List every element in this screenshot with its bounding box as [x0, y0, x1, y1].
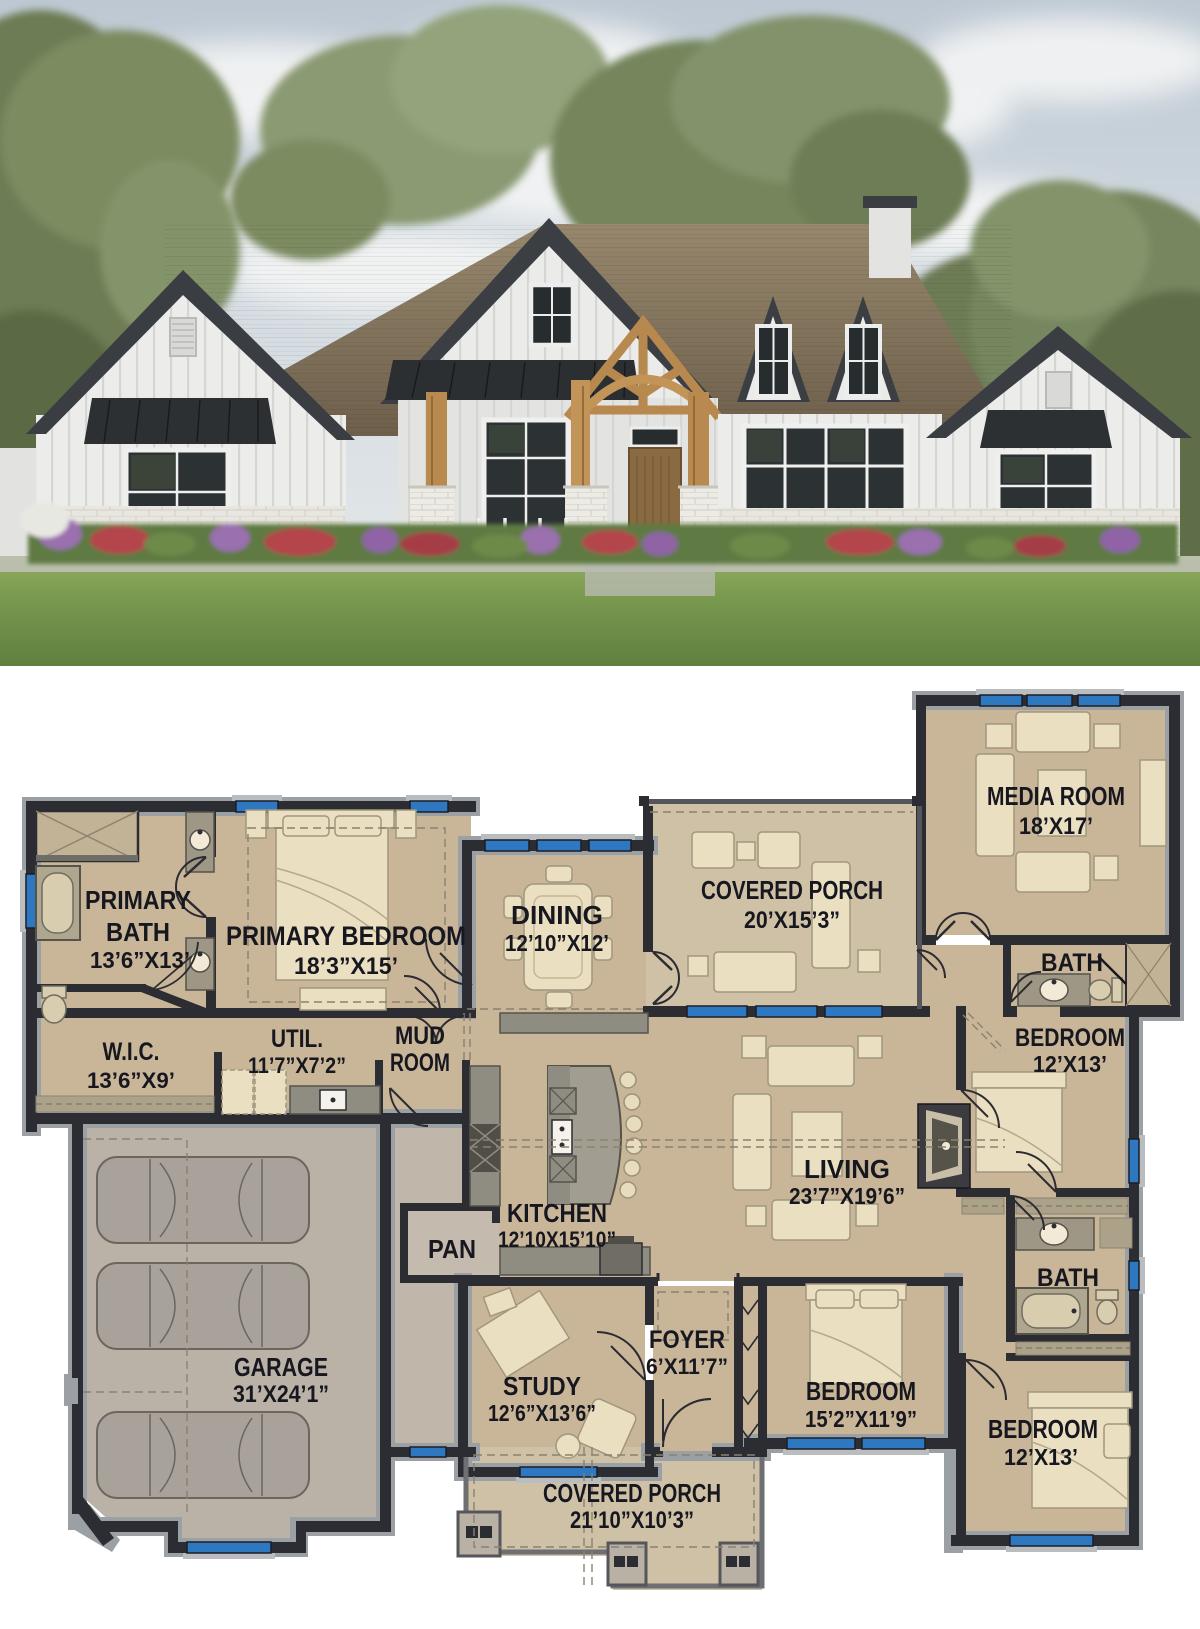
svg-text:BATH: BATH	[1041, 949, 1103, 977]
svg-text:21’10”X10’3”: 21’10”X10’3”	[570, 1507, 694, 1534]
svg-text:18’3”X15’: 18’3”X15’	[294, 953, 398, 980]
svg-text:11’7”X7’2”: 11’7”X7’2”	[248, 1053, 346, 1078]
svg-text:PAN: PAN	[428, 1234, 476, 1264]
svg-text:MEDIA ROOM: MEDIA ROOM	[987, 781, 1125, 811]
svg-text:FOYER: FOYER	[649, 1326, 725, 1354]
svg-text:PRIMARY: PRIMARY	[85, 885, 191, 915]
svg-text:12’6”X13’6”: 12’6”X13’6”	[488, 1400, 596, 1426]
svg-text:BATH: BATH	[106, 917, 170, 947]
svg-text:ROOM: ROOM	[390, 1049, 450, 1077]
svg-text:COVERED PORCH: COVERED PORCH	[701, 875, 883, 905]
svg-text:W.I.C.: W.I.C.	[103, 1038, 160, 1066]
svg-text:12’10X15’10”: 12’10X15’10”	[498, 1227, 616, 1252]
svg-text:BATH: BATH	[1037, 1264, 1099, 1292]
svg-text:13’6”X9’: 13’6”X9’	[87, 1068, 175, 1093]
svg-text:12’X13’: 12’X13’	[1004, 1444, 1078, 1470]
svg-text:DINING: DINING	[511, 900, 603, 930]
svg-text:GARAGE: GARAGE	[234, 1352, 328, 1382]
svg-text:18’X17’: 18’X17’	[1019, 813, 1093, 840]
svg-text:12’10”X12’: 12’10”X12’	[505, 930, 609, 956]
svg-text:12’X13’: 12’X13’	[1033, 1051, 1107, 1077]
svg-text:31’X24’1”: 31’X24’1”	[233, 1381, 329, 1408]
svg-text:13’6”X13’: 13’6”X13’	[90, 947, 190, 973]
svg-text:KITCHEN: KITCHEN	[507, 1198, 607, 1228]
svg-text:COVERED PORCH: COVERED PORCH	[543, 1478, 721, 1508]
svg-text:BEDROOM: BEDROOM	[1015, 1024, 1125, 1052]
svg-text:BEDROOM: BEDROOM	[988, 1414, 1098, 1444]
svg-text:20’X15’3”: 20’X15’3”	[744, 907, 840, 934]
svg-text:BEDROOM: BEDROOM	[806, 1376, 916, 1406]
svg-text:LIVING: LIVING	[804, 1154, 890, 1184]
svg-text:STUDY: STUDY	[503, 1371, 581, 1401]
svg-text:PRIMARY BEDROOM: PRIMARY BEDROOM	[226, 921, 466, 951]
svg-text:23’7”X19’6”: 23’7”X19’6”	[789, 1183, 905, 1209]
svg-text:UTIL.: UTIL.	[271, 1025, 323, 1053]
svg-text:MUD: MUD	[395, 1022, 445, 1050]
svg-text:6’X11’7”: 6’X11’7”	[646, 1354, 728, 1379]
svg-text:15’2”X11’9”: 15’2”X11’9”	[805, 1406, 917, 1432]
